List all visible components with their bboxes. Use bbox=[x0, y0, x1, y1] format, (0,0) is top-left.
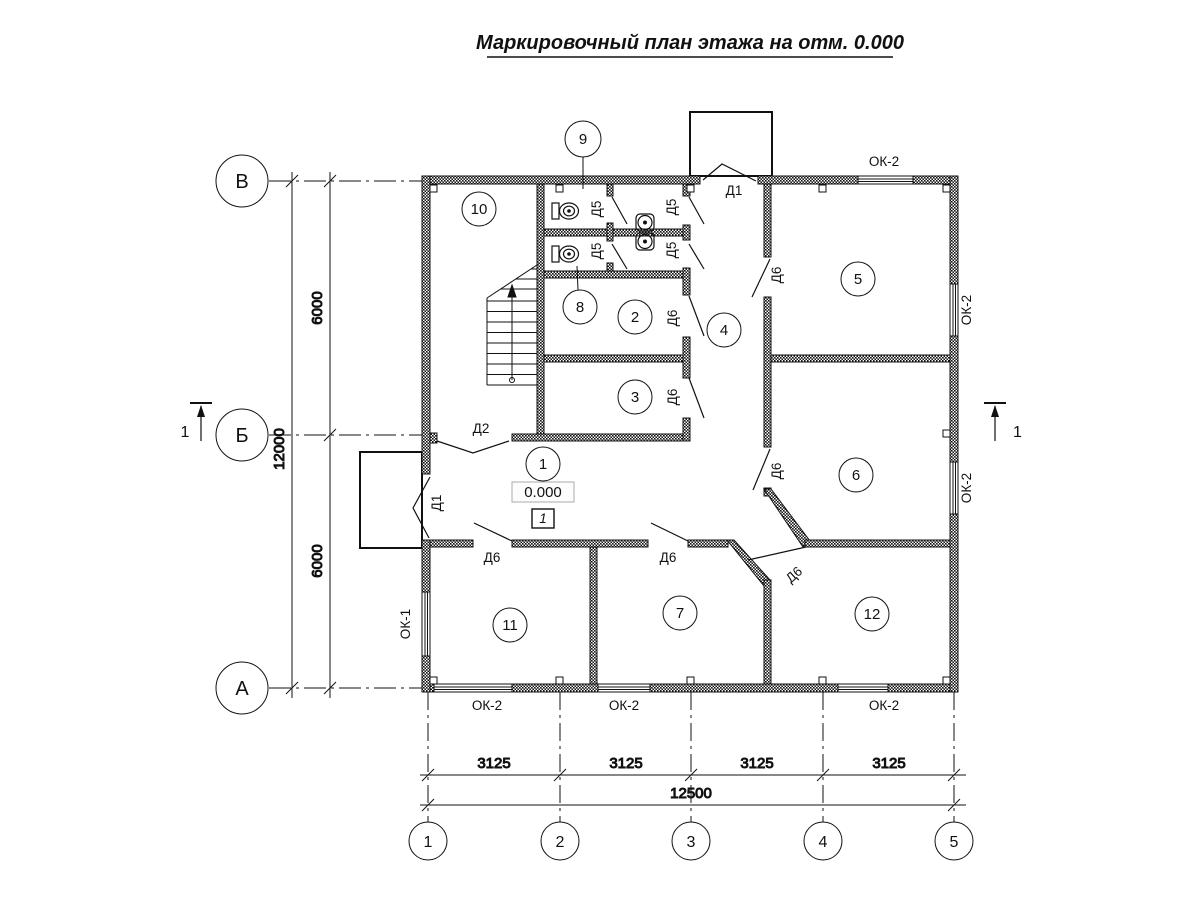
axis-label-3: 3 bbox=[687, 834, 696, 851]
room-8-leader bbox=[577, 266, 578, 290]
door-label-d6-room7: Д6 bbox=[660, 550, 677, 565]
room-number-12: 12 bbox=[864, 606, 881, 623]
window-label-bottom-ok2-2: ОК-2 bbox=[609, 698, 639, 713]
room-number-6: 6 bbox=[852, 467, 860, 484]
door-label-d5-1: Д5 bbox=[589, 201, 604, 218]
room-number-5: 5 bbox=[854, 271, 862, 288]
sink-icon-1 bbox=[636, 214, 654, 231]
door-leaf-d5-1 bbox=[612, 197, 627, 224]
door-label-d6-room12: Д6 bbox=[783, 564, 805, 586]
door-leaf-d6-room5 bbox=[752, 259, 770, 297]
door-leaf-d6-room7 bbox=[651, 523, 688, 541]
door-label-d5-4: Д5 bbox=[664, 242, 679, 259]
door-leaf-d6-room12 bbox=[748, 547, 806, 560]
elevation-mark: 0.000 1 bbox=[512, 482, 574, 528]
section-arrow-right bbox=[991, 405, 999, 417]
window-label-right-ok2-1: ОК-2 bbox=[959, 295, 974, 325]
porch-left bbox=[360, 452, 422, 548]
door-leaf-d6-room3 bbox=[689, 378, 704, 418]
window-right-ok2-2 bbox=[950, 462, 958, 514]
door-label-d5-3: Д5 bbox=[589, 243, 604, 260]
stair-up-arrow bbox=[508, 285, 516, 297]
toilet-icon-2 bbox=[552, 246, 579, 262]
room-number-8: 8 bbox=[576, 299, 584, 316]
dim-bottom-seg2: 3125 bbox=[609, 755, 642, 772]
axis-label-2: 2 bbox=[556, 834, 565, 851]
door-labels: Д1 Д1 Д2 Д5 Д5 Д5 Д5 Д6 Д6 Д6 Д6 Д6 Д6 Д… bbox=[429, 183, 805, 586]
window-left-ok1 bbox=[422, 592, 430, 656]
drawing-title: Маркировочный план этажа на отм. 0.000 bbox=[476, 32, 904, 54]
window-bottom-ok2-1 bbox=[434, 684, 512, 692]
section-number-left: 1 bbox=[181, 424, 190, 441]
floor-plan-drawing: Маркировочный план этажа на отм. 0.000 В… bbox=[0, 0, 1200, 900]
door-label-d5-2: Д5 bbox=[664, 199, 679, 216]
door-label-d2: Д2 bbox=[473, 421, 490, 436]
floor-plan-svg: Маркировочный план этажа на отм. 0.000 В… bbox=[0, 0, 1200, 900]
window-bottom-ok2-2 bbox=[598, 684, 650, 692]
door-leaf-d5-2 bbox=[612, 244, 627, 269]
door-leaf-d1-top bbox=[703, 164, 756, 181]
door-leaf-d6-room6 bbox=[753, 449, 770, 490]
zone-number: 1 bbox=[539, 511, 547, 526]
axis-bubbles-bottom: 1 2 3 4 5 bbox=[409, 822, 973, 860]
dim-bottom-seg1: 3125 bbox=[477, 755, 510, 772]
window-top-ok2 bbox=[858, 176, 913, 184]
door-label-d6-room3: Д6 bbox=[665, 389, 680, 406]
title-block: Маркировочный план этажа на отм. 0.000 bbox=[476, 32, 904, 57]
room-number-9: 9 bbox=[579, 131, 587, 148]
door-leaf-d5-4 bbox=[689, 244, 704, 269]
dim-left-seg2: 6000 bbox=[309, 544, 326, 577]
window-label-top-ok2: ОК-2 bbox=[869, 154, 899, 169]
room-number-2: 2 bbox=[631, 309, 639, 326]
room-number-3: 3 bbox=[631, 389, 639, 406]
room-number-11: 11 bbox=[502, 617, 518, 634]
porch-top bbox=[690, 112, 772, 176]
door-label-d1-top: Д1 bbox=[726, 183, 743, 198]
door-leaf-d6-room2 bbox=[689, 296, 704, 336]
dim-bottom-seg4: 3125 bbox=[872, 755, 905, 772]
section-mark-right: 1 bbox=[984, 403, 1022, 441]
axis-label-a: А bbox=[235, 678, 249, 700]
door-leaf-d2 bbox=[437, 441, 509, 453]
axis-label-5: 5 bbox=[950, 834, 959, 851]
room-number-1: 1 bbox=[539, 456, 547, 473]
dim-bottom-seg3: 3125 bbox=[740, 755, 773, 772]
door-leaf-d6-room11 bbox=[474, 523, 512, 541]
dimensions-left: 6000 6000 12000 bbox=[271, 172, 336, 698]
door-label-d6-room5: Д6 bbox=[769, 267, 784, 284]
axis-label-v: В bbox=[235, 171, 248, 193]
section-number-right: 1 bbox=[1013, 424, 1022, 441]
window-label-right-ok2-2: ОК-2 bbox=[959, 473, 974, 503]
window-label-bottom-ok2-3: ОК-2 bbox=[869, 698, 899, 713]
dim-bottom-total: 12500 bbox=[670, 785, 712, 802]
stairs bbox=[487, 263, 540, 385]
door-label-d6-room6: Д6 bbox=[769, 463, 784, 480]
room-number-7: 7 bbox=[676, 605, 684, 622]
window-label-left-ok1: ОК-1 bbox=[398, 609, 413, 639]
door-leaf-d5-3 bbox=[689, 197, 704, 224]
axis-label-4: 4 bbox=[819, 834, 828, 851]
dim-left-seg1: 6000 bbox=[309, 291, 326, 324]
toilet-icon-1 bbox=[552, 203, 579, 219]
dim-left-total: 12000 bbox=[271, 428, 288, 470]
door-label-d6-room11: Д6 bbox=[484, 550, 501, 565]
dimensions-bottom: 3125 3125 3125 3125 12500 bbox=[420, 755, 966, 811]
window-label-bottom-ok2-1: ОК-2 bbox=[472, 698, 502, 713]
axis-label-1: 1 bbox=[424, 834, 433, 851]
door-label-d6-room2: Д6 bbox=[665, 310, 680, 327]
window-bottom-ok2-3 bbox=[838, 684, 888, 692]
room-number-10: 10 bbox=[471, 201, 488, 218]
room-number-4: 4 bbox=[720, 322, 728, 339]
section-arrow-left bbox=[197, 405, 205, 417]
elevation-value: 0.000 bbox=[524, 484, 562, 501]
axis-label-b: Б bbox=[235, 425, 248, 447]
axis-bubbles-left: В Б А bbox=[216, 155, 268, 714]
section-mark-left: 1 bbox=[181, 403, 212, 441]
window-right-ok2-1 bbox=[950, 284, 958, 336]
door-label-d1-left: Д1 bbox=[429, 495, 444, 512]
